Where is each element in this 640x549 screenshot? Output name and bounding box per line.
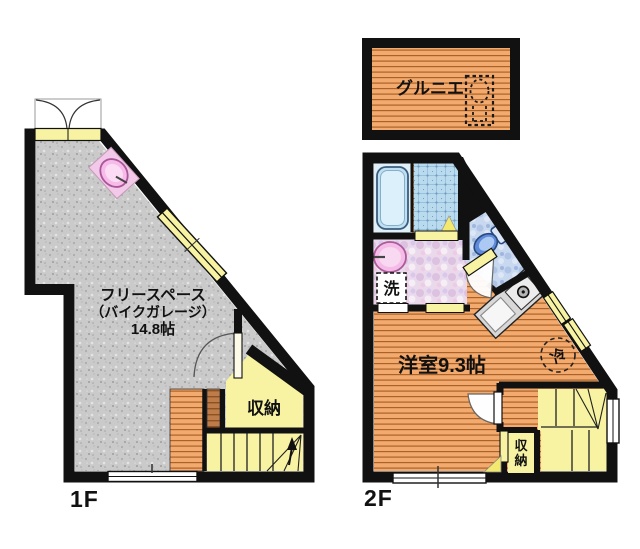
floor-plan-drawing: グルニエ — [0, 0, 640, 549]
storage-label-1f: 収納 — [247, 398, 281, 418]
free-space-label-line2: （バイクガレージ） — [90, 304, 215, 320]
storage-door-1f — [234, 333, 242, 378]
washbasin — [373, 242, 406, 272]
free-space-size-label: 14.8帖 — [131, 320, 175, 338]
window-right-2f — [607, 399, 619, 443]
bedroom-label: 洋室9.3帖 — [398, 353, 486, 377]
bath-threshold — [415, 231, 458, 241]
washroom-threshold-yellow — [426, 304, 464, 313]
floor-plan-page: グルニエ — [0, 0, 640, 549]
floor-label-2f: 2F — [364, 485, 393, 511]
laundry-label: 洗 — [383, 279, 399, 298]
entrance-double-door — [35, 99, 101, 141]
attic-plan: グルニエ — [362, 38, 520, 140]
floor-label-1f: 1F — [70, 486, 99, 512]
deck-floor — [170, 389, 204, 471]
bathtub — [377, 167, 408, 229]
washroom-threshold-white — [378, 304, 408, 313]
storage-label-2f-char2: 納 — [514, 453, 527, 468]
bedroom-door — [494, 392, 502, 424]
attic-label: グルニエ — [396, 78, 464, 98]
storage-label-2f-char1: 収 — [514, 438, 528, 453]
floor-plan-1f: フリースペース （バイクガレージ） 14.8帖 収納 1F — [30, 99, 309, 512]
deck-step — [207, 389, 220, 428]
free-space-label-line1: フリースペース — [100, 287, 206, 304]
floor-plan-2f: 冷 — [364, 157, 619, 511]
